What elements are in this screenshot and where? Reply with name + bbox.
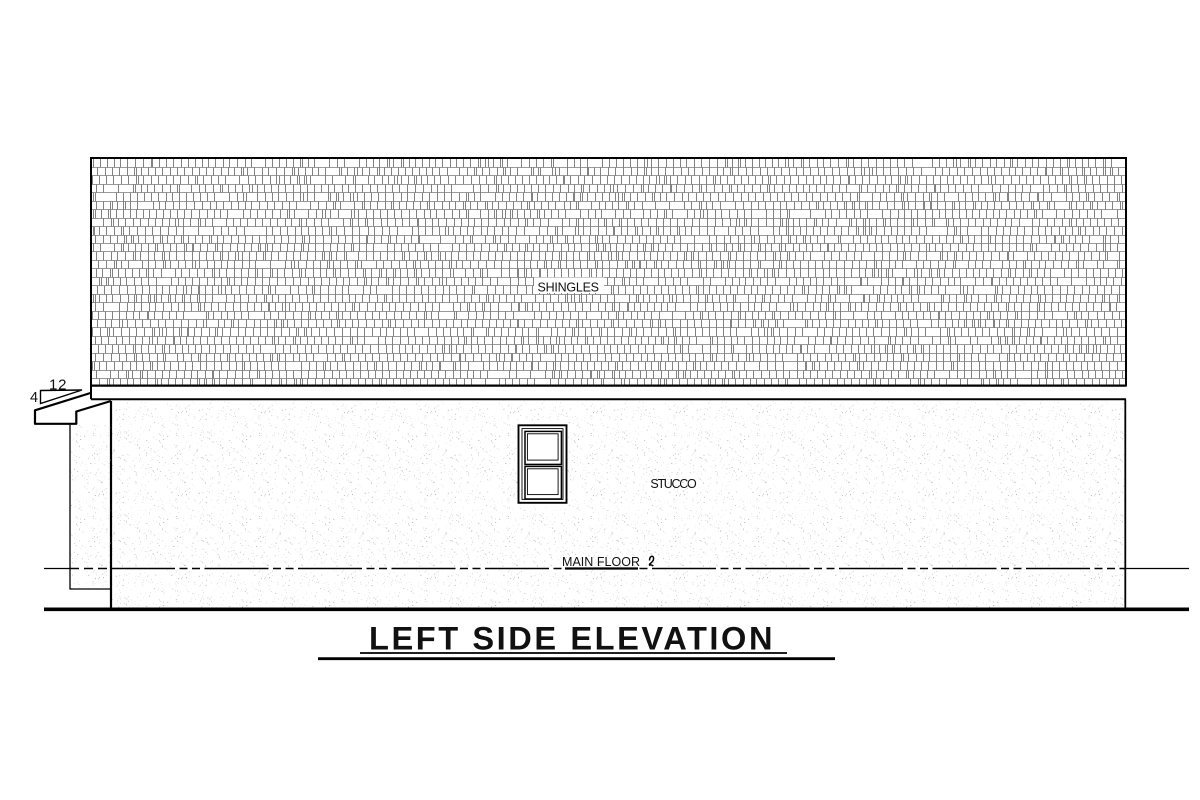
svg-text:4: 4 bbox=[30, 390, 38, 406]
svg-text:MAIN FLOOR: MAIN FLOOR bbox=[562, 555, 640, 569]
svg-text:LEFT SIDE ELEVATION: LEFT SIDE ELEVATION bbox=[369, 619, 773, 656]
svg-text:STUCCO: STUCCO bbox=[650, 477, 697, 491]
svg-text:SHINGLES: SHINGLES bbox=[538, 281, 600, 295]
svg-text:12: 12 bbox=[49, 377, 67, 394]
